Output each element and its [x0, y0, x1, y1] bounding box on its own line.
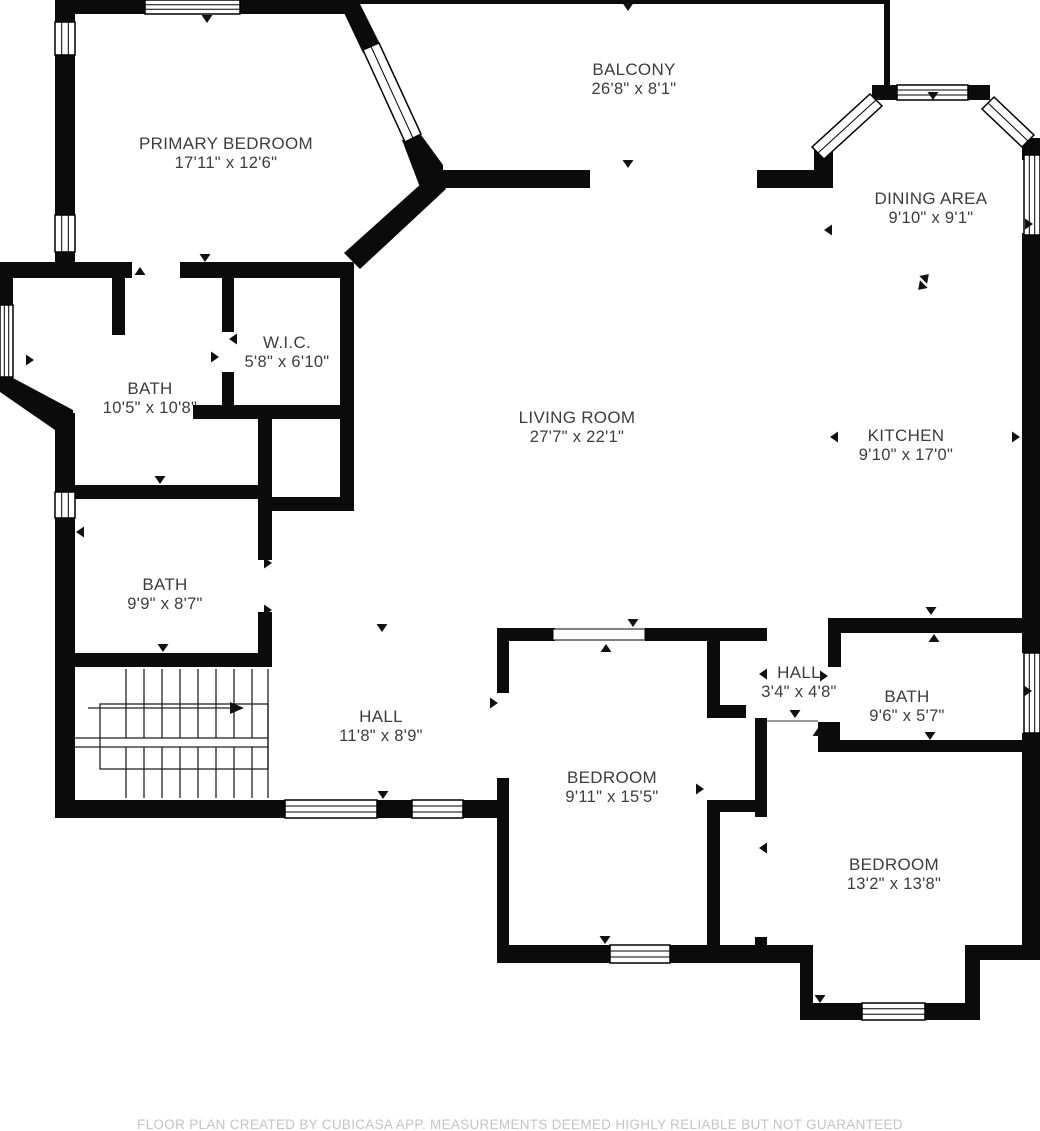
arrow-down-icon: [202, 15, 213, 23]
window-diagonal: [363, 43, 421, 142]
arrow-down-icon: [925, 732, 936, 740]
room-name: LIVING ROOM: [519, 408, 636, 428]
room-dims: 9'11" x 15'5": [565, 788, 658, 808]
room-name: BALCONY: [592, 60, 677, 80]
arrow-right-icon: [211, 352, 219, 363]
window: [862, 1003, 925, 1020]
room-label-bath-3: BATH 9'6" x 5'7": [869, 687, 944, 727]
room-dims: 9'6" x 5'7": [869, 707, 944, 727]
room-dims: 9'10" x 9'1": [875, 209, 988, 229]
room-dims: 17'11" x 12'6": [139, 154, 313, 174]
room-name: HALL: [339, 707, 423, 727]
arrow-up-icon: [135, 267, 146, 275]
arrow-down-icon: [926, 607, 937, 615]
room-dims: 11'8" x 8'9": [339, 727, 423, 747]
room-name: DINING AREA: [875, 189, 988, 209]
arrow-down-icon: [628, 619, 639, 627]
room-dims: 9'10" x 17'0": [859, 446, 953, 466]
window: [610, 945, 670, 963]
window: [55, 215, 75, 252]
room-name: W.I.C.: [245, 333, 330, 353]
room-label-hall-2: HALL 3'4" x 4'8": [761, 663, 836, 703]
window: [285, 800, 377, 818]
arrow-right-icon: [1012, 432, 1020, 443]
room-label-bedroom-1: BEDROOM 9'11" x 15'5": [565, 768, 658, 808]
room-name: BATH: [127, 575, 202, 595]
arrow-left-icon: [830, 432, 838, 443]
room-dims: 27'7" x 22'1": [519, 428, 636, 448]
window-diagonal: [982, 97, 1034, 147]
room-label-primary-bedroom: PRIMARY BEDROOM 17'11" x 12'6": [139, 134, 313, 174]
room-label-kitchen: KITCHEN 9'10" x 17'0": [859, 426, 953, 466]
room-label-balcony: BALCONY 26'8" x 8'1": [592, 60, 677, 100]
arrow-down-icon: [623, 3, 634, 11]
window: [55, 22, 75, 55]
arrow-up-icon: [929, 634, 940, 642]
arrow-right-icon: [490, 698, 498, 709]
room-name: HALL: [761, 663, 836, 683]
room-name: PRIMARY BEDROOM: [139, 134, 313, 154]
room-name: BEDROOM: [847, 855, 941, 875]
arrow-down-icon: [155, 476, 166, 484]
room-name: BEDROOM: [565, 768, 658, 788]
room-name: BATH: [103, 379, 197, 399]
arrow-down-icon: [600, 936, 611, 944]
arrow-left-icon: [759, 843, 767, 854]
cased-opening: [553, 629, 645, 640]
stair-railing: [100, 704, 268, 769]
window: [412, 800, 463, 818]
window: [55, 492, 75, 518]
arrow-down-icon: [790, 710, 801, 718]
floor-plan-page: PRIMARY BEDROOM 17'11" x 12'6" BALCONY 2…: [0, 0, 1040, 1131]
room-dims: 9'9" x 8'7": [127, 595, 202, 615]
arrow-right-icon: [26, 355, 34, 366]
arrow-down-icon: [377, 624, 388, 632]
arrow-left-icon: [229, 334, 237, 345]
arrow-down-icon: [158, 644, 169, 652]
arrow-down-icon: [200, 254, 211, 262]
arrow-right-icon: [696, 784, 704, 795]
room-dims: 26'8" x 8'1": [592, 80, 677, 100]
arrow-down-icon: [378, 791, 389, 799]
room-name: KITCHEN: [859, 426, 953, 446]
room-label-bath-2: BATH 9'9" x 8'7": [127, 575, 202, 615]
arrow-up-icon: [601, 644, 612, 652]
room-label-wic: W.I.C. 5'8" x 6'10": [245, 333, 330, 373]
room-dims: 13'2" x 13'8": [847, 875, 941, 895]
arrow-down-icon: [623, 160, 634, 168]
window: [145, 0, 240, 14]
room-name: BATH: [869, 687, 944, 707]
room-label-hall-1: HALL 11'8" x 8'9": [339, 707, 423, 747]
staircase: [75, 669, 268, 798]
arrow-down-icon: [815, 995, 826, 1003]
room-label-living-room: LIVING ROOM 27'7" x 22'1": [519, 408, 636, 448]
room-label-bath-1: BATH 10'5" x 10'8": [103, 379, 197, 419]
window: [0, 305, 13, 377]
room-label-dining-area: DINING AREA 9'10" x 9'1": [875, 189, 988, 229]
arrow-left-icon: [824, 225, 832, 236]
room-dims: 10'5" x 10'8": [103, 399, 197, 419]
disclaimer-text: FLOOR PLAN CREATED BY CUBICASA APP. MEAS…: [137, 1117, 903, 1131]
room-dims: 3'4" x 4'8": [761, 683, 836, 703]
room-dims: 5'8" x 6'10": [245, 353, 330, 373]
room-label-bedroom-2: BEDROOM 13'2" x 13'8": [847, 855, 941, 895]
arrow-left-icon: [76, 527, 84, 538]
window-diagonal: [812, 94, 882, 159]
